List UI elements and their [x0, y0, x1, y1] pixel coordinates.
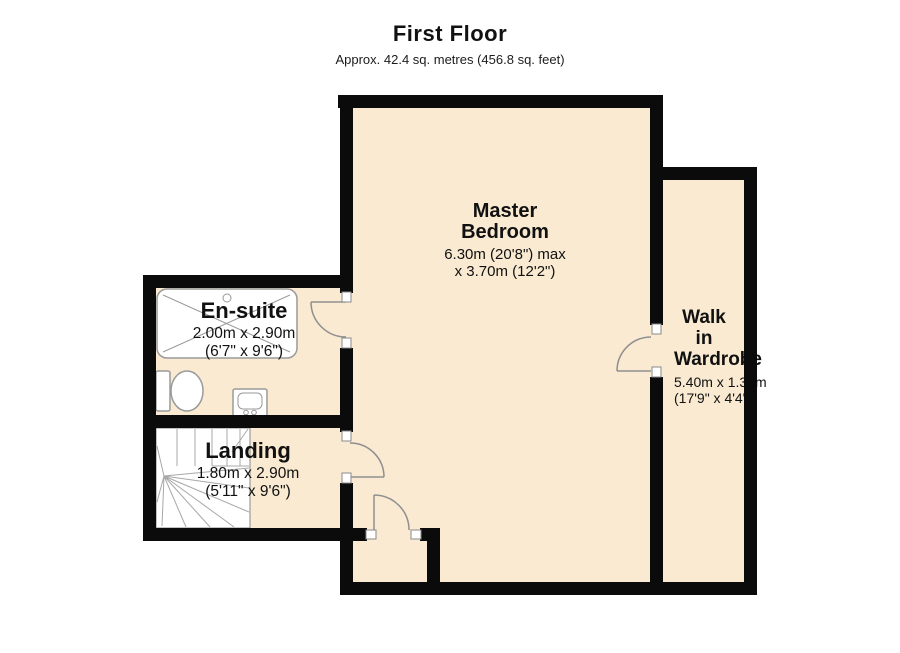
room-name: Master Bedroom	[430, 201, 580, 243]
room-dimensions-imperial: (17'9" x 4'4")	[674, 390, 734, 406]
room-dimensions-metric: 6.30m (20'8") max	[430, 246, 580, 263]
room-dimensions-metric: 5.40m x 1.33m	[674, 374, 734, 390]
room-dimensions-metric: 2.00m x 2.90m	[154, 325, 334, 343]
room-dimensions-imperial: (5'11" x 9'6")	[158, 483, 338, 501]
room-label-walk-in-wardrobe: Walk in Wardrobe 5.40m x 1.33m (17'9" x …	[674, 307, 734, 406]
room-name: En-suite	[154, 299, 334, 322]
room-label-ensuite: En-suite 2.00m x 2.90m (6'7" x 9'6")	[154, 299, 334, 360]
room-dimensions-imperial: (6'7" x 9'6")	[154, 343, 334, 361]
room-label-master-bedroom: Master Bedroom 6.30m (20'8") max x 3.70m…	[430, 201, 580, 280]
room-label-landing: Landing 1.80m x 2.90m (5'11" x 9'6")	[158, 439, 338, 500]
room-dimensions-metric: 1.80m x 2.90m	[158, 465, 338, 483]
room-dimensions-imperial: x 3.70m (12'2")	[430, 263, 580, 280]
floorplan-canvas: First Floor Approx. 42.4 sq. metres (456…	[0, 0, 900, 653]
room-labels: Master Bedroom 6.30m (20'8") max x 3.70m…	[0, 0, 900, 653]
room-name: Walk in Wardrobe	[674, 307, 734, 370]
room-name: Landing	[158, 439, 338, 462]
